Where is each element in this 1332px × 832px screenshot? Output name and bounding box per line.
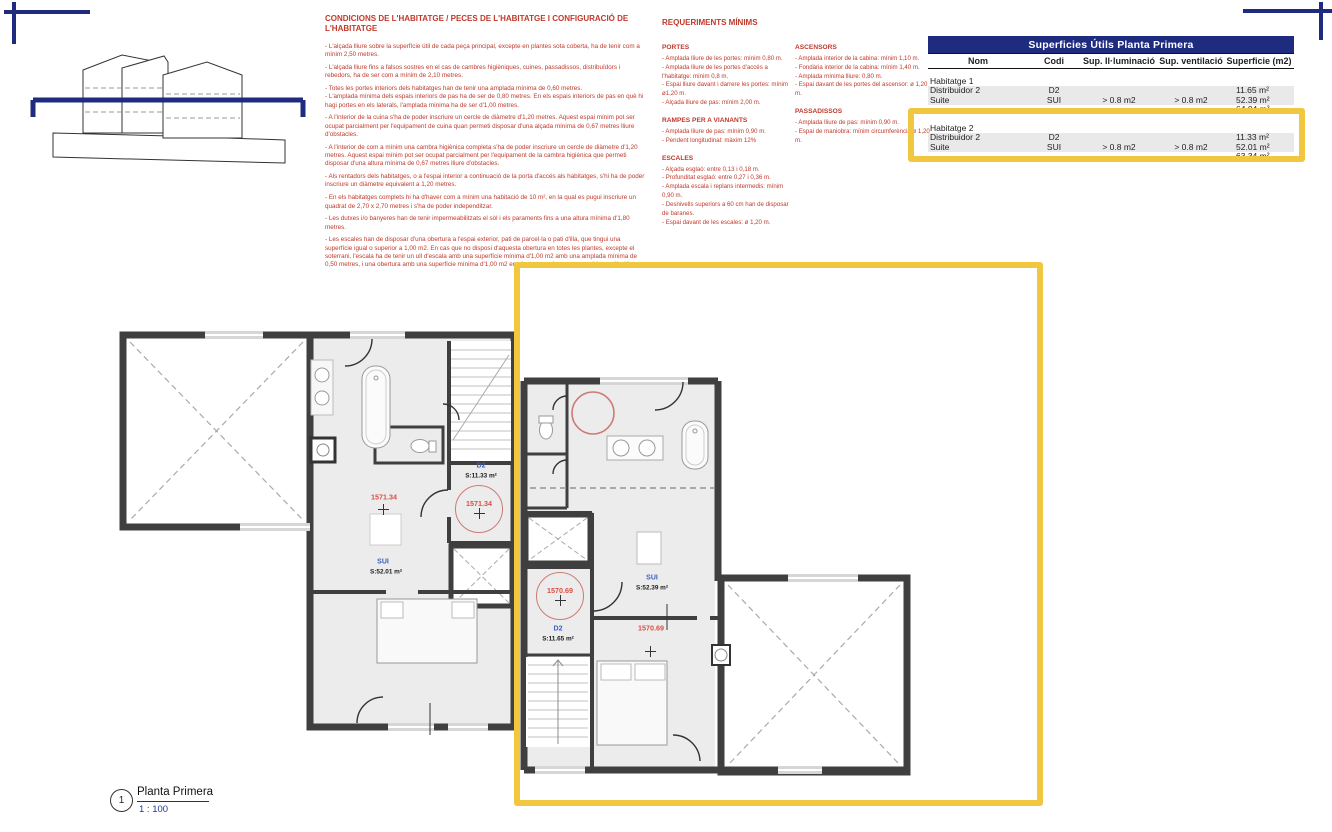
condition-item: - Les dutxes i/o banyeres han de tenir i…	[325, 215, 647, 232]
section-heading: PASSADISSOS	[795, 108, 930, 115]
total-row: 64.04 m²	[928, 105, 1294, 115]
requirements-col-2: ASCENSORS - Amplada interior de la cabin…	[795, 44, 930, 155]
void-right	[721, 578, 907, 772]
survey-marker-circle-unit1: 1571.34	[455, 485, 503, 533]
room-code-sui-unit1: SUI	[377, 559, 389, 566]
bed-right	[597, 661, 667, 745]
section-heading: RAMPES PER A VIANANTS	[662, 117, 790, 124]
survey-cross-unit1	[378, 504, 389, 515]
col-nom: Nom	[928, 56, 1028, 66]
desk-right	[637, 532, 661, 564]
conditions-block: CONDICIONS DE L'HABITATGE / PECES DE L'H…	[325, 14, 647, 274]
toilet-right	[539, 416, 553, 439]
survey-marker-circle-unit2: 1570.69	[536, 572, 584, 620]
table-row: Distribuidor 2 D2 11.33 m²	[928, 133, 1294, 143]
room-area-d2-unit1: S:11.33 m²	[465, 473, 497, 480]
void-left	[123, 335, 310, 527]
col-codi: Codi	[1028, 56, 1080, 66]
condition-item: - Les escales han de disposar d'una ober…	[325, 236, 647, 269]
col-illuminacio: Sup. Il·luminació	[1080, 56, 1158, 66]
bathtub-right	[682, 421, 708, 469]
bathtub-left	[362, 366, 390, 448]
table-title: Superficies Útils Planta Primera	[928, 36, 1294, 53]
requirements-block: REQUERIMENTS MÍNIMS	[662, 18, 930, 28]
col-superficie: Superficie (m2)	[1224, 56, 1294, 66]
section-rampes: RAMPES PER A VIANANTS - Amplada lliure d…	[662, 117, 790, 146]
surfaces-table: Superficies Útils Planta Primera Nom Cod…	[928, 36, 1294, 161]
requirements-col-1: PORTES - Amplada lliure de les portes: m…	[662, 44, 790, 236]
survey-cross-icon	[474, 508, 485, 519]
table-header-row: Nom Codi Sup. Il·luminació Sup. ventilac…	[928, 53, 1294, 69]
group-row: Habitatge 1	[928, 76, 1294, 86]
col-ventilacio: Sup. ventilació	[1158, 56, 1224, 66]
corner-mark-top-right	[1243, 2, 1332, 40]
section-passadissos: PASSADISSOS - Amplada lliure de pas: mín…	[795, 108, 930, 145]
section-heading: ESCALES	[662, 155, 790, 162]
corner-mark-top-left	[4, 2, 90, 44]
view-scale: 1 : 100	[139, 804, 168, 815]
condition-item: - A l'interior de com a mínim una cambra…	[325, 144, 647, 169]
section-heading: PORTES	[662, 44, 790, 51]
double-sink-right	[607, 436, 663, 460]
room-code-d2-unit1: D2	[477, 463, 486, 470]
survey-marker-unit2: 1570.69	[638, 624, 664, 633]
condition-item: - L'alçada lliure fins a falsos sostres …	[325, 64, 647, 81]
skylight-left	[370, 514, 401, 545]
survey-marker-unit1: 1571.34	[371, 493, 397, 502]
room-area-sui-unit2: S:52.39 m²	[636, 585, 668, 592]
shower-left	[311, 438, 335, 462]
survey-cross-icon	[555, 595, 566, 606]
condition-item: - A l'interior de la cuina s'ha de poder…	[325, 114, 647, 139]
total-row: 63.34 m²	[928, 152, 1294, 162]
bed-left	[377, 599, 477, 663]
column-right	[712, 645, 730, 665]
section-portes: PORTES - Amplada lliure de les portes: m…	[662, 44, 790, 108]
condition-item: - Als rentadors dels habitatges, o a l'e…	[325, 173, 647, 190]
group-row: Habitatge 2	[928, 123, 1294, 133]
room-code-sui-unit2: SUI	[646, 575, 658, 582]
section-ascensors: ASCENSORS - Amplada interior de la cabin…	[795, 44, 930, 99]
table-row: Suite SUI > 0.8 m2 > 0.8 m2 52.01 m²	[928, 142, 1294, 152]
view-title: Planta Primera	[137, 786, 213, 798]
condition-item: - L'alçada lliure sobre la superfície út…	[325, 43, 647, 60]
survey-cross-unit2	[645, 646, 656, 657]
section-escales: ESCALES - Alçada esglaó: entre 0,13 i 0,…	[662, 155, 790, 228]
drawing-sheet: CONDICIONS DE L'HABITATGE / PECES DE L'H…	[0, 0, 1332, 832]
conditions-title: CONDICIONS DE L'HABITATGE / PECES DE L'H…	[325, 14, 647, 35]
toilet-left	[411, 440, 436, 453]
table-row: Suite SUI > 0.8 m2 > 0.8 m2 52.39 m²	[928, 95, 1294, 105]
condition-item: - En els habitatges complets hi ha d'hav…	[325, 194, 647, 211]
view-number-bubble: 1	[110, 789, 133, 812]
table-row: Distribuidor 2 D2 11.65 m²	[928, 86, 1294, 96]
condition-item: - L'amplada mínima dels espais interiors…	[325, 93, 647, 110]
building-section-sketch	[33, 55, 303, 163]
room-area-sui-unit1: S:52.01 m²	[370, 569, 402, 576]
room-code-d2-unit2: D2	[554, 626, 563, 633]
view-title-rule	[137, 801, 209, 802]
double-sink-left	[311, 360, 333, 415]
condition-item: - Totes les portes interiors dels habita…	[325, 85, 647, 93]
requirements-title: REQUERIMENTS MÍNIMS	[662, 18, 930, 28]
room-area-d2-unit2: S:11.65 m²	[542, 636, 574, 643]
section-heading: ASCENSORS	[795, 44, 930, 51]
